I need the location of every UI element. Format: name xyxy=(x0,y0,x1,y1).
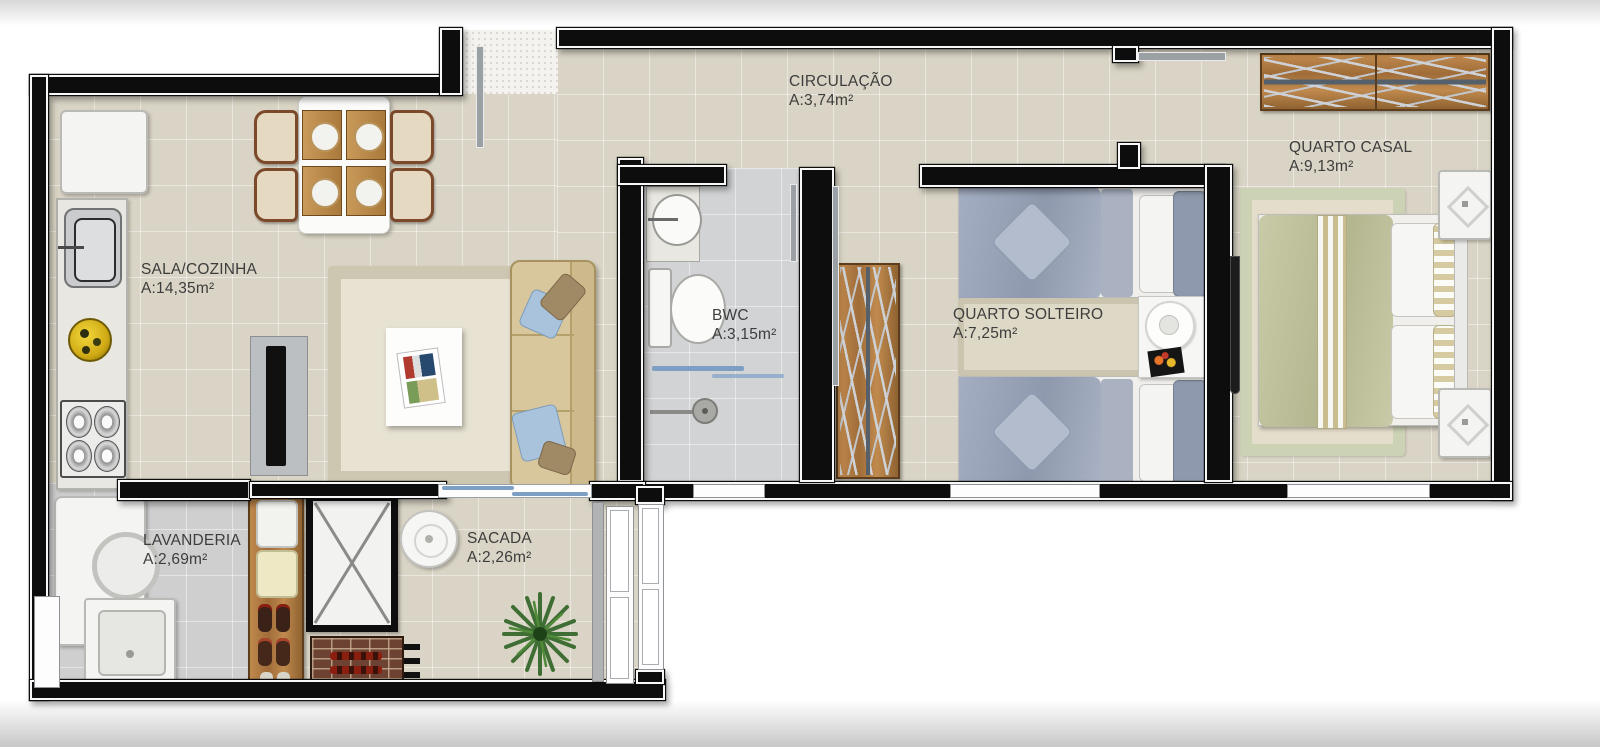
wall xyxy=(30,75,48,700)
shoes xyxy=(277,672,290,686)
burner xyxy=(66,406,92,438)
faucet xyxy=(648,218,678,221)
embers xyxy=(330,666,382,674)
grill-vent xyxy=(404,672,420,678)
placemat-icon xyxy=(346,166,386,216)
nightstand-icon xyxy=(1438,388,1492,458)
room-area: A:2,26m² xyxy=(467,549,532,568)
single-bed-icon xyxy=(958,376,1210,486)
burner xyxy=(94,440,120,472)
plant-icon xyxy=(498,586,582,680)
plate xyxy=(354,178,384,208)
wall xyxy=(1492,28,1512,500)
nightstand-motif xyxy=(1447,186,1489,228)
tank-drain xyxy=(126,650,134,658)
folded-sheet xyxy=(1101,379,1133,485)
chair-icon xyxy=(254,168,298,222)
shower-drain-icon xyxy=(692,398,718,424)
placemat-icon xyxy=(346,110,386,160)
entrance-threshold xyxy=(458,30,558,94)
room-label-quarto-solteiro: QUARTO SOLTEIRO A:7,25m² xyxy=(953,306,1103,344)
double-bed-icon xyxy=(1258,214,1456,426)
room-area: A:3,15m² xyxy=(712,326,777,345)
nightstand-icon xyxy=(1438,170,1492,240)
burner xyxy=(66,440,92,472)
wardrobe-divider xyxy=(1375,55,1377,109)
shoes xyxy=(258,638,272,666)
window-icon xyxy=(1287,484,1430,498)
floor-plan: SALA/COZINHA A:14,35m² CIRCULAÇÃO A:3,74… xyxy=(0,0,1600,747)
fruit xyxy=(82,346,90,354)
shoes xyxy=(258,604,272,632)
embers xyxy=(330,652,382,660)
magazine-art xyxy=(406,378,439,404)
tank-basin xyxy=(98,610,166,676)
plate xyxy=(310,178,340,208)
wardrobe-icon xyxy=(836,263,900,479)
barbecue-grill-icon xyxy=(310,636,404,690)
folded-sheet xyxy=(1101,189,1133,297)
room-label-circulacao: CIRCULAÇÃO A:3,74m² xyxy=(789,73,893,111)
shoes xyxy=(276,604,290,632)
toilet-tank xyxy=(648,268,672,348)
bed-pillow xyxy=(1173,380,1207,486)
chair-icon xyxy=(254,110,298,164)
room-label-quarto-casal: QUARTO CASAL A:9,13m² xyxy=(1289,139,1412,177)
storage-box xyxy=(256,500,298,548)
room-name: LAVANDERIA xyxy=(143,532,241,551)
room-label-sala-cozinha: SALA/COZINHA A:14,35m² xyxy=(141,261,257,299)
round-table-icon xyxy=(400,510,458,568)
wall xyxy=(30,75,460,95)
hangers xyxy=(840,267,896,475)
room-name: QUARTO CASAL xyxy=(1289,139,1412,158)
window-icon xyxy=(693,484,765,498)
room-area: A:14,35m² xyxy=(141,280,257,299)
placemat-icon xyxy=(302,110,342,160)
room-label-bwc: BWC A:3,15m² xyxy=(712,307,777,345)
sink-faucet xyxy=(58,246,84,249)
stove-icon xyxy=(60,400,126,478)
room-name: SACADA xyxy=(467,530,532,549)
fruit xyxy=(80,329,89,338)
nightstand-icon xyxy=(1138,296,1208,378)
single-bed-icon xyxy=(958,186,1210,298)
room-area: A:2,69m² xyxy=(143,551,241,570)
shaft-x xyxy=(313,501,391,625)
room-area: A:7,25m² xyxy=(953,325,1103,344)
room-name: CIRCULAÇÃO xyxy=(789,73,893,92)
book-icon xyxy=(1147,347,1184,377)
room-area: A:9,13m² xyxy=(1289,158,1412,177)
magazine-icon xyxy=(396,347,445,408)
bed-pillow xyxy=(1173,191,1207,297)
shoe-shelf-icon xyxy=(248,490,304,688)
sink-basin xyxy=(74,218,116,282)
tv-icon xyxy=(266,346,286,466)
nightstand-knob xyxy=(1462,201,1468,207)
wall xyxy=(557,28,1512,48)
shoes xyxy=(260,672,273,686)
room-name: SALA/COZINHA xyxy=(141,261,257,280)
grill-vent xyxy=(404,644,420,650)
wardrobe-icon xyxy=(1260,53,1490,111)
chair-icon xyxy=(390,110,434,164)
plate xyxy=(310,122,340,152)
laundry-tank-icon xyxy=(84,598,176,686)
nightstand-motif xyxy=(1447,404,1489,446)
drain-hole xyxy=(702,408,708,414)
lamp-icon xyxy=(1145,301,1195,351)
fridge-icon xyxy=(60,110,148,194)
fruit xyxy=(93,338,101,346)
towel-bar-icon xyxy=(712,374,784,378)
room-name: QUARTO SOLTEIRO xyxy=(953,306,1103,325)
towel-bar-icon xyxy=(652,366,744,371)
nightstand-knob xyxy=(1462,419,1468,425)
placemat-icon xyxy=(302,166,342,216)
room-label-sacada: SACADA A:2,26m² xyxy=(467,530,532,568)
burner xyxy=(94,406,120,438)
plate xyxy=(354,122,384,152)
room-name: BWC xyxy=(712,307,777,326)
room-label-lavanderia: LAVANDERIA A:2,69m² xyxy=(143,532,241,570)
duct-shaft-icon xyxy=(306,494,398,632)
kitchen-sink-icon xyxy=(64,208,122,288)
storage-box xyxy=(256,550,298,598)
bed-runner xyxy=(1317,215,1347,429)
shoes xyxy=(276,638,290,666)
vanity-sink-icon xyxy=(652,194,702,246)
fruit-bowl-icon xyxy=(68,318,112,362)
room-area: A:3,74m² xyxy=(789,92,893,111)
grill-vent xyxy=(404,658,420,664)
chair-icon xyxy=(390,168,434,222)
table-center xyxy=(425,535,433,543)
magazine-art xyxy=(403,353,436,379)
lamp-top xyxy=(1159,315,1179,335)
